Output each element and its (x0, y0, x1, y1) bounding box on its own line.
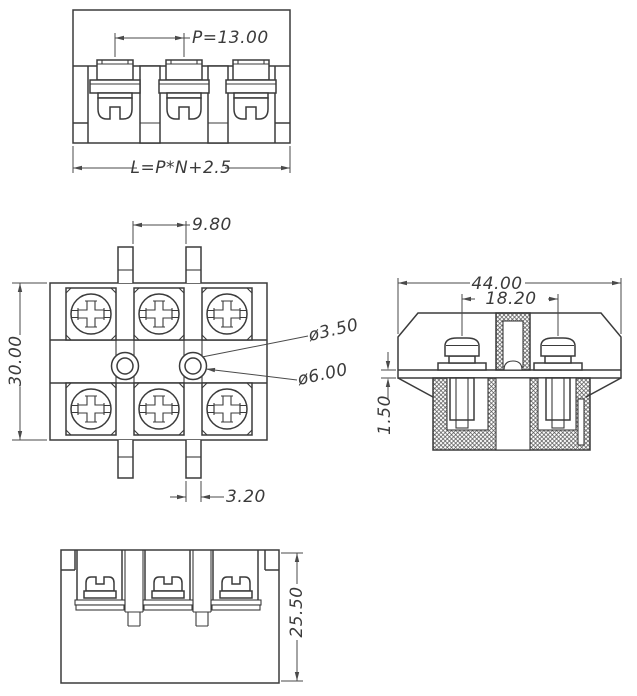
section-view: 44.00 18.20 1.50 (375, 274, 621, 450)
screw-head (71, 389, 111, 429)
drawing-sheet: P=13.00 L=P*N+2.5 (0, 0, 637, 696)
screw-head (207, 389, 247, 429)
dim-depth: 30.00 (6, 283, 47, 440)
screw-head (139, 294, 179, 334)
top-view: 9.80 30.00 ø3.50 ø6.00 3.20 (6, 215, 361, 507)
dim-tab-gap: 9.80 (133, 215, 232, 244)
screw-head (139, 389, 179, 429)
front-view: P=13.00 L=P*N+2.5 (73, 10, 290, 178)
screw-head (207, 294, 247, 334)
terminal-block-drawing: P=13.00 L=P*N+2.5 (0, 0, 637, 696)
bottom-view: 25.50 (61, 550, 307, 683)
mounting-hole-left (112, 353, 139, 380)
dim-hole-large-label: ø6.00 (295, 360, 350, 390)
dim-screw-spacing-label: 18.20 (485, 289, 536, 309)
mounting-tab-bottom-left (118, 440, 133, 478)
mounting-tab-bottom-right (186, 440, 201, 478)
dim-tab-gap-label: 9.80 (192, 215, 232, 235)
dim-flange-thickness-label: 1.50 (375, 395, 395, 435)
dim-depth-label: 30.00 (6, 335, 26, 386)
dim-tab-width-label: 3.20 (226, 487, 266, 507)
dim-flange-thickness: 1.50 (375, 352, 396, 435)
dim-hole-small-label: ø3.50 (306, 315, 361, 346)
mounting-tab-top-left (118, 247, 133, 283)
dim-tab-width: 3.20 (170, 481, 266, 507)
dim-total-length-label: L=P*N+2.5 (131, 158, 232, 178)
dim-overall-height-label: 25.50 (287, 586, 307, 637)
mounting-tab-top-right (186, 247, 201, 283)
center-barrier (496, 313, 530, 370)
dim-total-length: L=P*N+2.5 (73, 146, 290, 178)
dim-pitch-label: P=13.00 (192, 28, 269, 48)
screw-head (71, 294, 111, 334)
dim-overall-height: 25.50 (281, 553, 307, 681)
